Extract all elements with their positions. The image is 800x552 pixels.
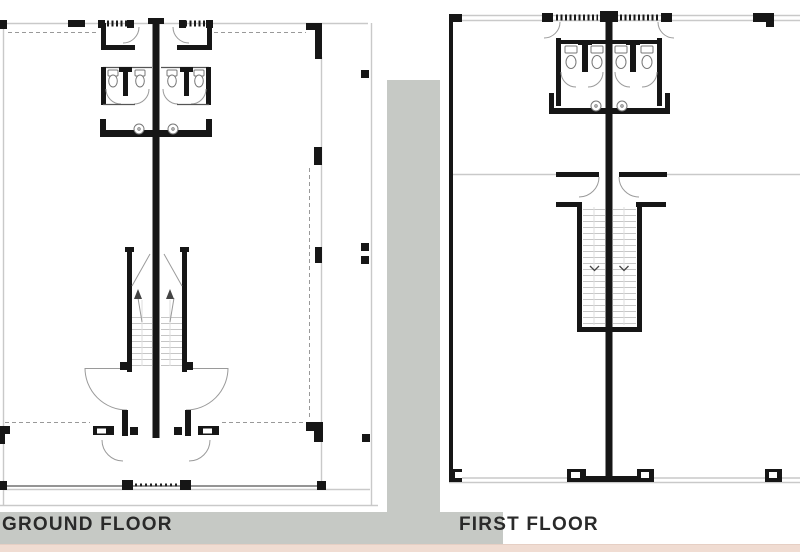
first-floor-label: FIRST FLOOR	[459, 514, 599, 536]
floor-plan-sheet: GROUND FLOOR FIRST FLOOR	[0, 0, 800, 552]
ground-floor-label: GROUND FLOOR	[2, 514, 173, 536]
first-floor-plan	[449, 11, 800, 483]
floor-plans-drawing	[0, 0, 800, 552]
ground-floor-plan	[0, 18, 378, 506]
ground-floor-party-wall	[148, 18, 164, 438]
first-floor-party-wall	[606, 14, 613, 476]
